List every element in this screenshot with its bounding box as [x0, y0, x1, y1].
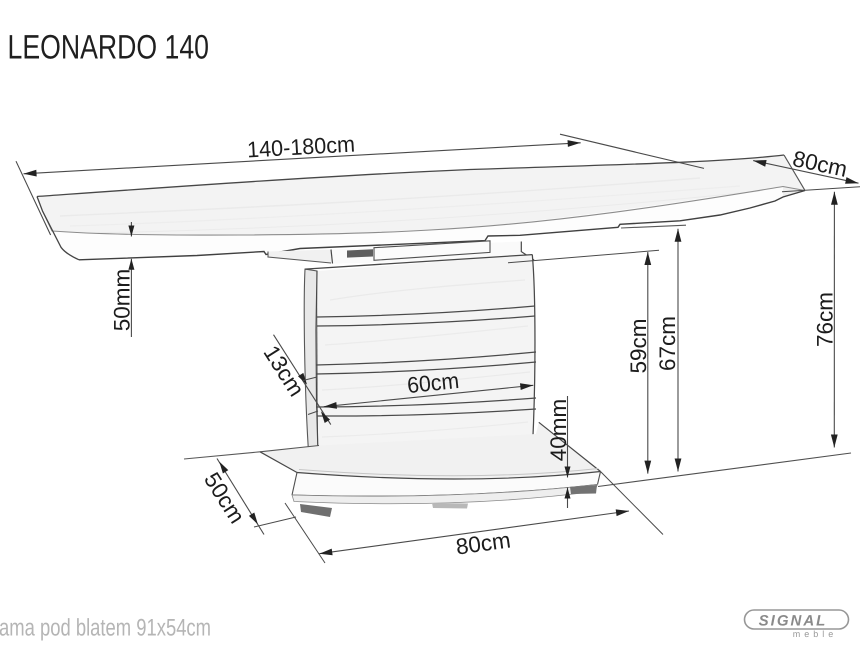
svg-text:59cm: 59cm [626, 318, 651, 373]
svg-text:SIGNAL: SIGNAL [759, 613, 828, 630]
svg-text:76cm: 76cm [813, 292, 838, 347]
svg-text:LEONARDO 140: LEONARDO 140 [8, 29, 210, 67]
svg-text:67cm: 67cm [655, 316, 680, 371]
svg-text:50mm: 50mm [110, 269, 135, 332]
svg-text:60cm: 60cm [406, 368, 460, 398]
svg-text:ama pod blatem 91x54cm: ama pod blatem 91x54cm [0, 615, 211, 642]
svg-text:meble: meble [793, 629, 838, 639]
svg-text:40mm: 40mm [546, 399, 571, 462]
